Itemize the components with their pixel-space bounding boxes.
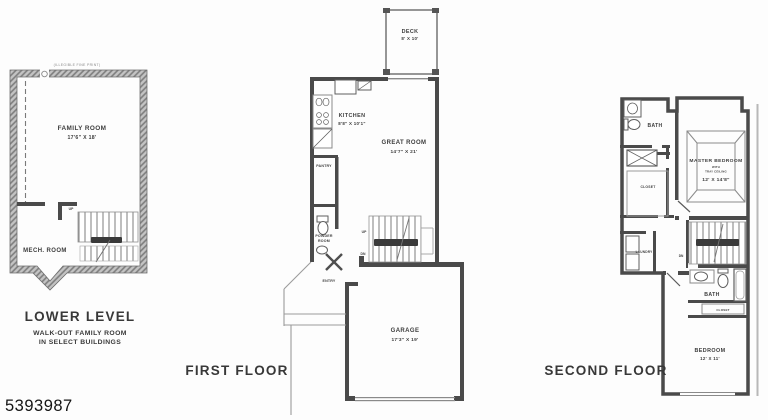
master-closet-outline [627,171,668,216]
listing-number: 5393987 [5,397,73,415]
entry-door-swing [326,254,342,270]
bath-upper-label: BATH [647,123,662,129]
great-room-label: GREAT ROOM [382,140,427,146]
master-door-swing [678,201,690,212]
first-floor-plan: DECK 8' X 10' [185,8,464,415]
first-floor-dn-label: DN [361,252,366,256]
bath-upper-fixtures [624,100,657,166]
powder-room-label-1: POWDER [315,234,333,238]
powder-room-label-2: ROOM [318,239,330,243]
deck-label: DECK [402,29,419,35]
bath-hall-label: BATH [704,292,720,298]
bedroom-dims: 12' X 11' [700,356,720,361]
deck: DECK 8' X 10' [383,8,439,75]
pantry-label: PANTRY [316,164,332,168]
master-bedroom-sub2: TRAY CEILING [705,170,727,174]
first-floor-title: FIRST FLOOR [185,363,288,378]
kitchen-label: KITCHEN [339,113,366,119]
second-floor-walls [620,111,748,318]
lower-level-plan: (ILLEGIBLE FINE PRINT) FAMILY ROOM 17'6"… [10,63,147,346]
garage-dims: 17'3" X 19' [391,337,418,343]
second-floor-stairs [689,222,746,264]
lower-level-fine-print: (ILLEGIBLE FINE PRINT) [54,63,101,67]
first-floor-stairs: UP DN [361,216,433,262]
entry-porch-outline [284,262,346,415]
second-floor-title: SECOND FLOOR [544,363,667,378]
great-room-dims: 14'7" X 21' [390,149,417,155]
laundry-label: LAUNDRY [636,250,654,254]
family-room-dims: 17'6" X 18' [68,135,97,141]
deck-dims: 8' X 10' [401,36,418,41]
bedroom-window-gap [680,390,735,398]
hall-closet-label: CLOSET [716,308,729,312]
lower-level-subtitle-2: IN SELECT BUILDINGS [39,339,121,346]
second-floor-plan: BATH CLOSET LAUNDRY MASTER BEDROOM WITH … [544,98,757,398]
family-room-label: FAMILY ROOM [58,125,107,132]
floor-plan-sheet: (ILLEGIBLE FINE PRINT) FAMILY ROOM 17'6"… [0,0,768,420]
master-bedroom-dims: 12' X 14'8" [702,177,730,183]
second-floor-dn-label: DN [679,254,684,258]
mech-room-label: MECH. ROOM [23,248,67,254]
lower-level-subtitle-1: WALK-OUT FAMILY ROOM [33,330,127,337]
kitchen-dims: 8'8" X 10'1" [338,121,365,126]
floor-plan-drawing: (ILLEGIBLE FINE PRINT) FAMILY ROOM 17'6"… [0,0,768,420]
entry-label: ENTRY [322,279,335,283]
master-closet-label: CLOSET [641,185,657,189]
bedroom-label: BEDROOM [695,348,726,354]
master-bedroom-sub1: WITH [712,165,720,169]
master-bedroom-label: MASTER BEDROOM [689,158,742,164]
lower-up-label: UP [69,207,74,211]
garage-label: GARAGE [391,328,420,334]
first-floor-up-label: UP [362,230,367,234]
lower-level-title: LOWER LEVEL [25,309,136,324]
